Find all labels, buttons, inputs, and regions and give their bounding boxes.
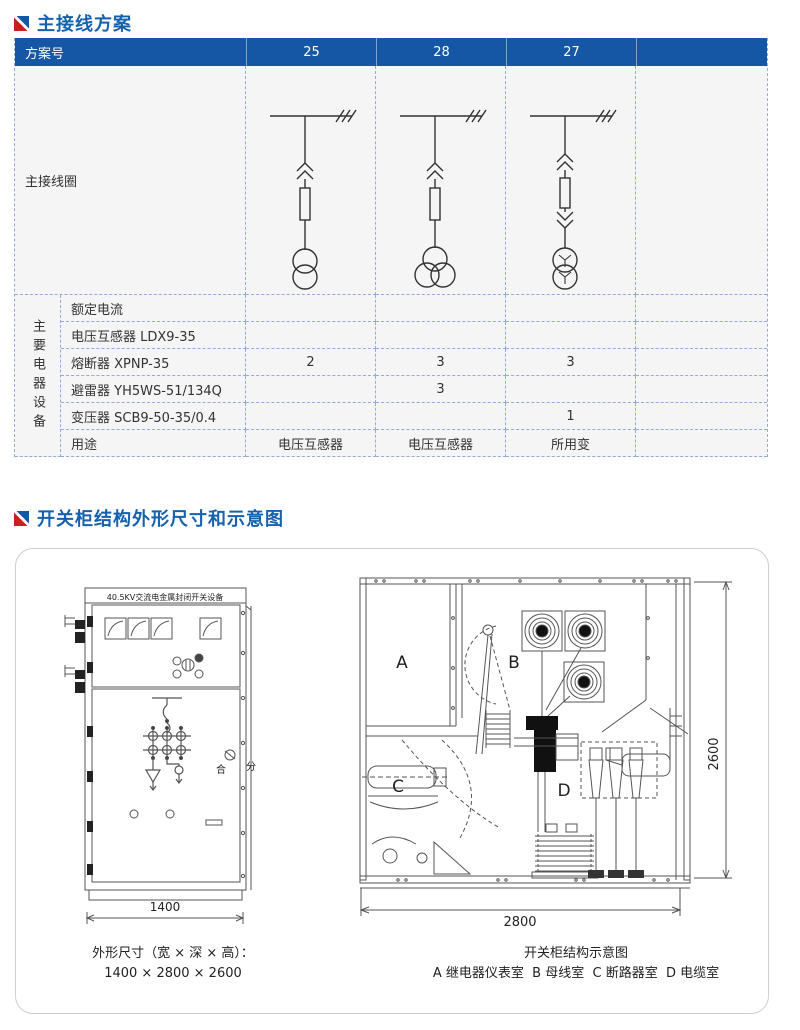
row-value (376, 322, 506, 349)
section-marker-icon (14, 16, 29, 31)
row-value (246, 376, 376, 403)
row-value (246, 403, 376, 430)
row-value: 所用变 (506, 430, 636, 457)
row-label: 避雷器 YH5WS-51/134Q (61, 376, 246, 403)
row-label: 额定电流 (61, 295, 246, 322)
width-dimension: 1400 (150, 900, 181, 914)
row-label: 熔断器 XPNP-35 (61, 349, 246, 376)
cabinet-front-view-drawing: 40.5KV交流电金属封闭开关设备 合 分 1400 (58, 558, 288, 938)
height-dimension: 2600 (707, 737, 722, 770)
row-value (376, 295, 506, 322)
scheme-number-header: 方案号 (15, 38, 246, 66)
outline-size-caption-line1: 外形尺寸（宽 × 深 × 高）： (58, 944, 288, 964)
row-value (636, 349, 767, 376)
row-value: 2 (246, 349, 376, 376)
section-marker-icon (14, 511, 29, 526)
row-label: 用途 (61, 430, 246, 457)
row-value (246, 322, 376, 349)
structure-caption-legend: A 继电器仪表室 B 母线室 C 断路器室 D 电缆室 (408, 964, 744, 984)
row-value (246, 295, 376, 322)
scheme-25-diagram (256, 108, 366, 293)
section1-title: 主接线方案 (37, 10, 132, 36)
scheme-empty-header (636, 38, 767, 66)
section2-title: 开关柜结构外形尺寸和示意图 (37, 505, 284, 531)
row-value (506, 376, 636, 403)
row-value: 电压互感器 (376, 430, 506, 457)
room-b-label: B (508, 653, 520, 673)
depth-dimension: 2800 (503, 915, 536, 930)
row-value (506, 295, 636, 322)
row-value: 3 (376, 376, 506, 403)
outline-size-caption: 外形尺寸（宽 × 深 × 高）： 1400 × 2800 × 2600 (58, 944, 288, 984)
section1-header: 主接线方案 (14, 10, 132, 36)
room-a-label: A (396, 653, 408, 673)
structure-caption: 开关柜结构示意图 A 继电器仪表室 B 母线室 C 断路器室 D 电缆室 (408, 944, 744, 984)
equipment-group-label: 主要电器设备 (15, 295, 61, 457)
cabinet-nameplate: 40.5KV交流电金属封闭开关设备 (107, 592, 224, 602)
scheme-25-diagram-cell (246, 66, 376, 295)
room-d-label: D (557, 781, 570, 801)
open-label: 分 (246, 761, 256, 773)
section2-header: 开关柜结构外形尺寸和示意图 (14, 505, 284, 531)
row-value (636, 430, 767, 457)
row-value (636, 322, 767, 349)
row-label: 电压互感器 LDX9-35 (61, 322, 246, 349)
row-value (636, 376, 767, 403)
room-c-label: C (392, 777, 404, 797)
scheme-28-header: 28 (376, 38, 506, 66)
diagram-row-label: 主接线圈 (15, 66, 246, 295)
scheme-27-diagram (516, 108, 626, 293)
scheme-28-diagram-cell (376, 66, 506, 295)
scheme-25-header: 25 (246, 38, 376, 66)
main-scheme-table: 方案号 25 28 27 主接线圈 (14, 38, 768, 457)
row-value (376, 403, 506, 430)
outline-size-caption-line2: 1400 × 2800 × 2600 (58, 964, 288, 984)
structure-section-drawing: A B C D 2600 2800 (338, 558, 748, 938)
scheme-28-diagram (386, 108, 496, 293)
row-label: 变压器 SCB9-50-35/0.4 (61, 403, 246, 430)
scheme-27-header: 27 (506, 38, 636, 66)
scheme-27-diagram-cell (506, 66, 636, 295)
row-value (506, 322, 636, 349)
scheme-empty-diagram-cell (636, 66, 767, 295)
row-value: 3 (376, 349, 506, 376)
row-value: 3 (506, 349, 636, 376)
close-label: 合 (216, 763, 226, 776)
row-value (636, 295, 767, 322)
catalog-page: 主接线方案 方案号 25 28 27 主接线圈 (0, 0, 800, 1030)
row-value (636, 403, 767, 430)
row-value: 电压互感器 (246, 430, 376, 457)
row-value: 1 (506, 403, 636, 430)
structure-caption-title: 开关柜结构示意图 (408, 944, 744, 964)
